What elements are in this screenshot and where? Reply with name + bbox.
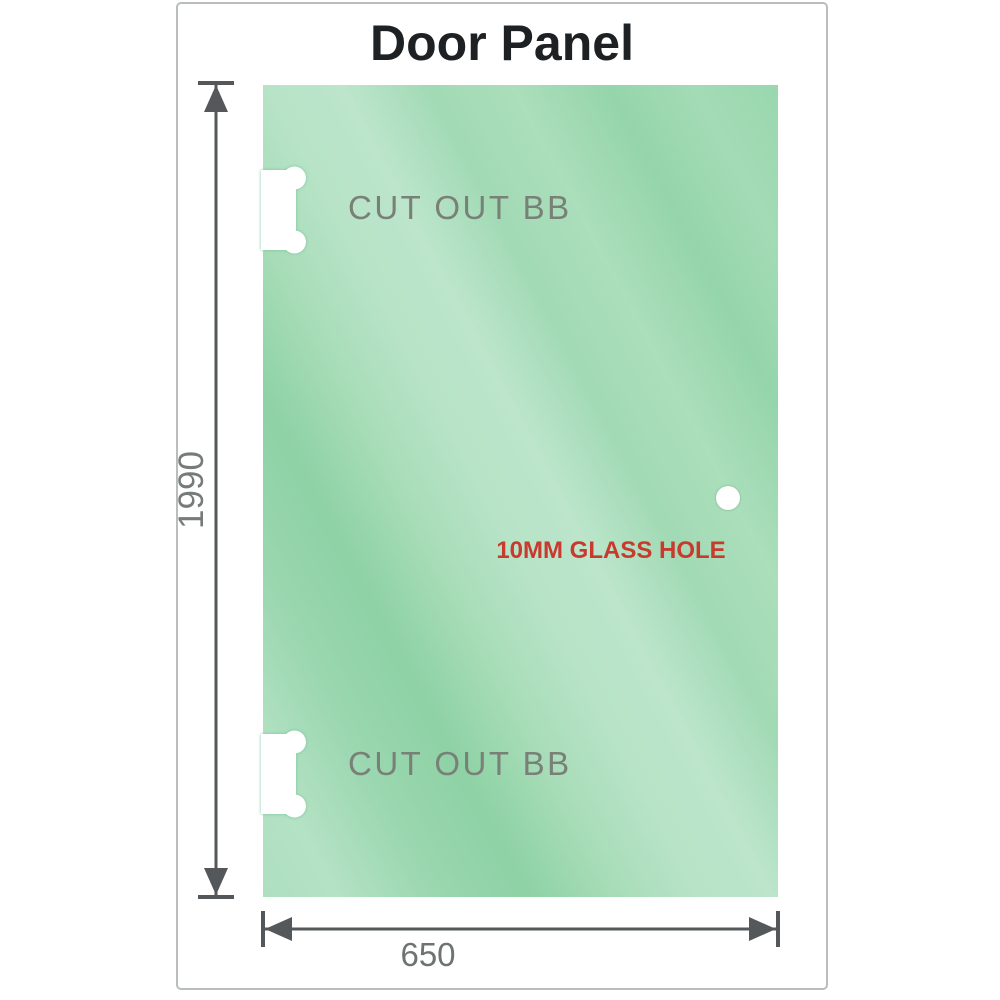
glass-hole-icon xyxy=(716,486,740,510)
cutout-label-bottom: CUT OUT BB xyxy=(348,745,572,783)
cutout-notch-top-icon xyxy=(261,166,309,254)
glass-panel: CUT OUT BB CUT OUT BB 10MM GLASS HOLE xyxy=(263,85,778,897)
diagram-canvas: Door Panel CUT OUT BB CUT OUT BB 10MM GL… xyxy=(0,0,1000,1000)
page-title: Door Panel xyxy=(177,14,827,72)
height-dimension-label: 1990 xyxy=(172,430,212,550)
glass-hole-annotation: 10MM GLASS HOLE xyxy=(496,537,725,565)
cutout-label-top: CUT OUT BB xyxy=(348,189,572,227)
width-dimension-label: 650 xyxy=(368,936,488,974)
cutout-notch-bottom-icon xyxy=(261,730,309,818)
